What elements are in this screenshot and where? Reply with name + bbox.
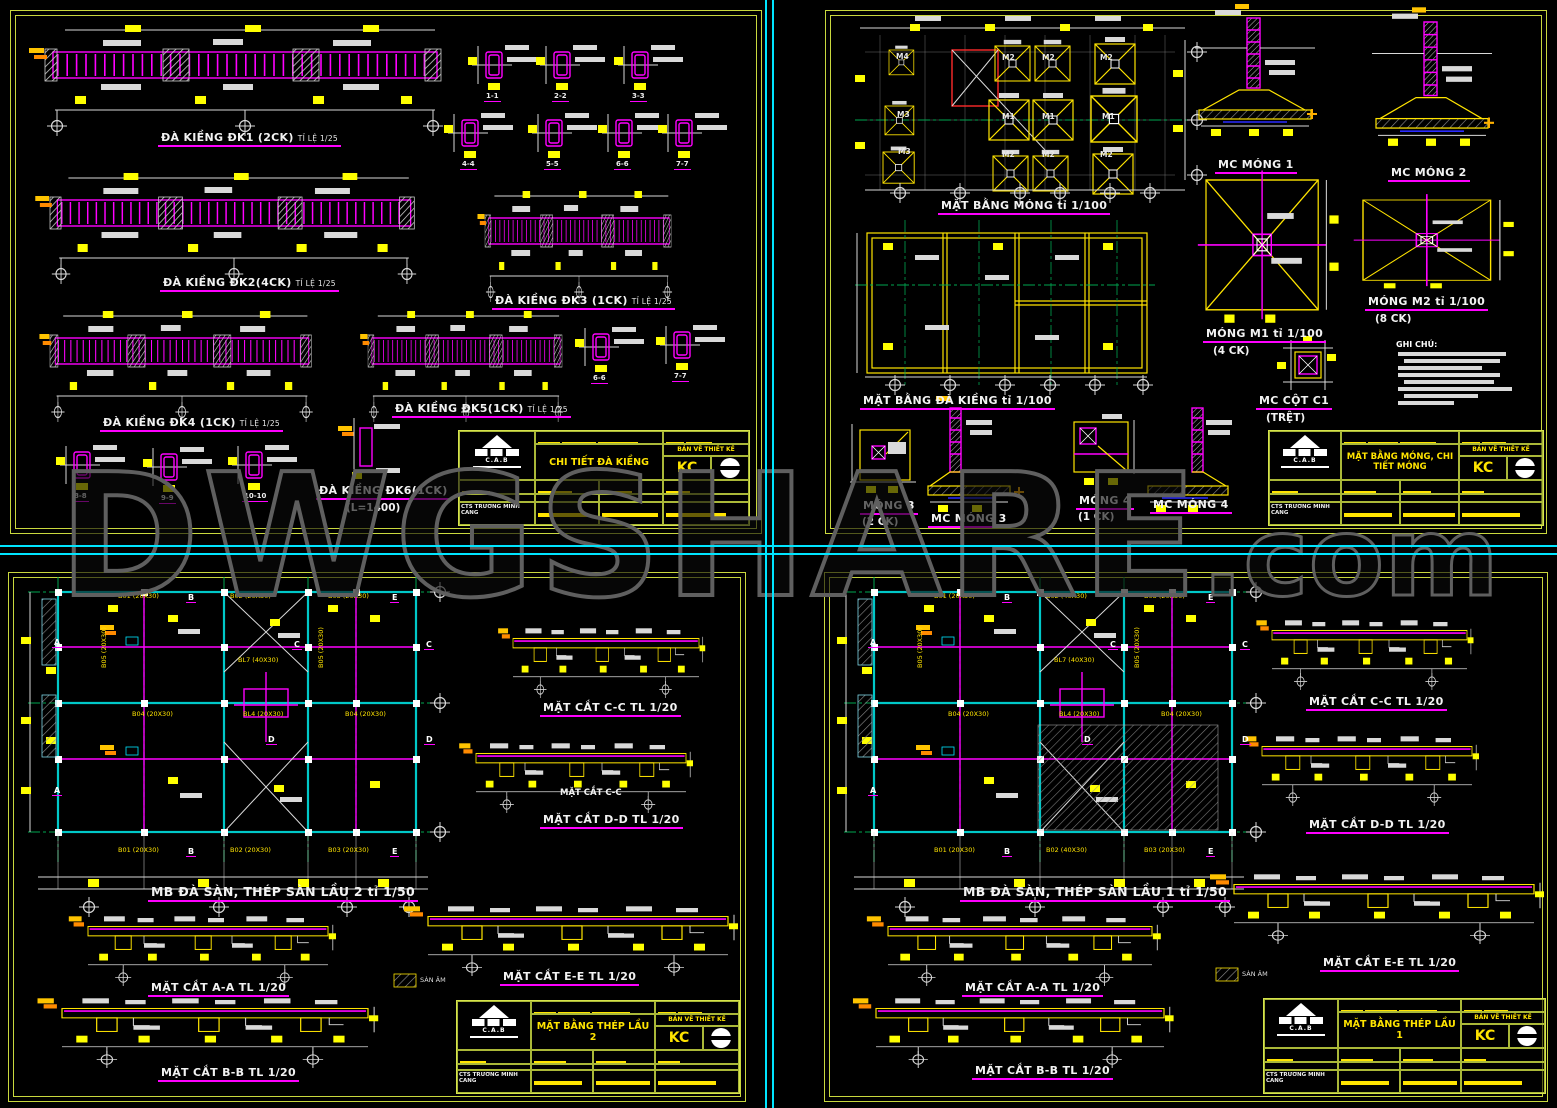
caption-mc-mong1: MC MÓNG 1 [1215,158,1297,174]
footing-label-m2: M2 [1002,150,1015,159]
beam-label-b02: B02 (40X30) [1046,846,1087,854]
logo-triangle-icon [1290,435,1320,448]
caption-cut-aa-bl: MẶT CẮT A-A TL 1/20 [148,981,289,997]
section-label-4-4: 4-4 [460,160,477,170]
discipline-code: KC [1459,456,1507,480]
beam-label-b05-v: B05 (20X30) [916,627,924,668]
axis-a: A [52,786,62,796]
project-strip [535,431,663,444]
beam-label-b01: B01 (20X30) [118,592,159,600]
footing-label-m2: M2 [1042,150,1055,159]
caption-cut-ee-br: MẶT CẮT E-E TL 1/20 [1320,956,1459,972]
revision-strip [1461,999,1545,1012]
caption-mong-m1-sub: (4 CK) [1213,345,1249,357]
section-label-2-2: 2-2 [552,92,569,102]
crosshair-horizontal-line [0,553,1557,555]
axis-a: A [52,638,62,648]
firm-name: CTS TRƯƠNG MINH CANG [1269,502,1341,525]
caption-mc-mong2: MC MÓNG 2 [1388,166,1470,182]
project-strip [1338,999,1461,1012]
drawing-title: MẶT BẰNG MÓNG, CHI TIẾT MÓNG [1341,444,1459,480]
sheet-number-icon [1517,1026,1537,1046]
beam-label-b03: B03 (20X30) [328,846,369,854]
section-label-7-7: 7-7 [674,160,691,170]
company-logo: C.A.B [457,1001,531,1050]
caption-mat-bang-mong: MẶT BẰNG MÓNG tỉ 1/100 [938,199,1110,215]
section-label-8-8: 8-8 [72,492,89,502]
axis-c: C [1240,640,1250,650]
sheet-number-icon [720,458,740,478]
caption-cut-dd-bl: MẶT CẮT D-D TL 1/20 [540,813,683,829]
logo-bars-icon [1283,449,1327,456]
section-label-3-3: 3-3 [630,92,647,102]
drawing-title: MẶT BẰNG THÉP LẦU 1 [1338,1012,1461,1048]
drawing-title: CHI TIẾT ĐÀ KIỀNG [535,444,663,480]
caption-mong-m2: MÓNG M2 tỉ 1/100 [1365,295,1488,311]
caption-plan-lau1: MB ĐÀ SÀN, THÉP SÀN LẦU 1 tỉ 1/50 [960,884,1230,902]
caption-mong3: MÓNG 3 [860,499,918,515]
beam-label-b03: B03 (20X30) [328,592,369,600]
footing-label-m3: M3 [897,110,910,119]
beam-label-bl7: BL7 (40X30) [1054,656,1094,664]
revision-strip [1459,431,1543,444]
caption-mong4-sub: (1 CK) [1078,511,1114,523]
axis-d: D [424,735,435,745]
beam-label-b04: B04 (20X30) [948,710,989,718]
logo-triangle-icon [482,435,512,448]
caption-cut-bb-br: MẶT CẮT B-B TL 1/20 [972,1064,1113,1080]
caption-mc-mong4: MC MÓNG 4 [1150,498,1232,514]
beam-label-b04: B04 (20X30) [345,710,386,718]
footing-label-m1: M1 [1042,112,1055,121]
cad-canvas: ĐÀ KIỀNG ĐK1 (2CK)TỈ LỆ 1/25 ĐÀ KIỀNG ĐK… [0,0,1557,1108]
caption-dk2: ĐÀ KIỀNG ĐK2(4CK)TỈ LỆ 1/25 [160,276,339,292]
company-logo: C.A.B [1264,999,1338,1048]
axis-b: B [1002,593,1012,603]
sheet-number-cell [1507,456,1543,480]
beam-label-b05-v: B05 (20X30) [100,627,108,668]
caption-mat-bang-da-kieng: MẶT BẰNG ĐÀ KIỀNG tỉ 1/100 [860,394,1055,410]
footing-label-m4: M4 [896,52,909,61]
axis-b: B [186,593,196,603]
caption-mc-mong3: MC MÓNG 3 [928,512,1010,528]
caption-cut-dd-br: MẶT CẮT D-D TL 1/20 [1306,818,1449,834]
caption-cut-cc-br: MẶT CẮT C-C TL 1/20 [1306,695,1447,711]
footing-label-m2: M2 [1042,53,1055,62]
sheet-number-cell [703,1026,739,1050]
crosshair-horizontal-line [0,545,1557,547]
axis-d: D [1240,735,1251,745]
axis-c: C [424,640,434,650]
beam-label-b03: B03 (20X30) [1144,592,1185,600]
notes-title: GHI CHÚ: [1396,340,1437,349]
beam-label-bl4: BL4 (20X30) [243,710,283,718]
caption-mong-m2-sub: (8 CK) [1375,313,1411,325]
legend-san-am-br: SÀN ÂM [1242,970,1268,978]
firm-name: CTS TRƯƠNG MINH CANG [459,502,535,525]
axis-c: C [292,640,302,650]
discipline-code: KC [655,1026,703,1050]
logo-triangle-icon [1286,1003,1316,1016]
footing-label-m2: M2 [1100,150,1113,159]
footing-label-m1: M1 [1102,112,1115,121]
beam-label-b05-v: B05 (20X30) [317,627,325,668]
project-strip [1341,431,1459,444]
logo-bars-icon [472,1019,516,1026]
title-block-br: C.A.B MẶT BẰNG THÉP LẦU 1 BẢN VẼ THIẾT K… [1263,998,1546,1094]
crosshair-vertical-line [772,0,774,1108]
drawing-title: MẶT BẰNG THÉP LẦU 2 [531,1014,655,1050]
doc-type: BẢN VẼ THIẾT KẾ [663,444,749,456]
sheet-number-cell [711,456,749,480]
section-label-6-6: 6-6 [614,160,631,170]
caption-cut-bb-bl: MẶT CẮT B-B TL 1/20 [158,1066,299,1082]
caption-dk6-sub: (L=1400) [346,502,400,514]
footing-label-m2: M2 [1100,53,1113,62]
caption-cut-ee-bl: MẶT CẮT E-E TL 1/20 [500,970,639,986]
section-label-5-5: 5-5 [544,160,561,170]
beam-label-b05-v: B05 (20X30) [1133,627,1141,668]
firm-name: CTS TRƯƠNG MINH CANG [1264,1070,1338,1093]
axis-b: B [186,847,196,857]
title-block-tr: C.A.B MẶT BẰNG MÓNG, CHI TIẾT MÓNG BẢN V… [1268,430,1544,526]
section-label-1-1: 1-1 [484,92,501,102]
caption-mong-m1: MÓNG M1 tỉ 1/100 [1203,327,1326,343]
revision-strip [663,431,749,444]
beam-label-bl7: BL7 (40X30) [238,656,278,664]
beam-label-b01: B01 (20X30) [934,846,975,854]
caption-mong3-sub: (2 CK) [862,516,898,528]
sheet-number-icon [1515,458,1535,478]
caption-dk4: ĐÀ KIỀNG ĐK4 (1CK)TỈ LỆ 1/25 [100,416,283,432]
axis-d: D [1082,735,1093,745]
axis-b: B [1002,847,1012,857]
logo-bars-icon [475,449,519,456]
axis-e: E [390,593,399,603]
section-label-10-10: 10-10 [242,492,268,502]
revision-strip [655,1001,739,1014]
beam-label-b01: B01 (20X30) [118,846,159,854]
firm-name: CTS TRƯƠNG MINH CANG [457,1070,531,1093]
beam-label-b02: B02 (20X30) [230,846,271,854]
axis-a: A [868,786,878,796]
caption-dk6: ĐÀ KIỀNG ĐK6(1CK) [316,484,451,500]
crosshair-vertical-line [765,0,767,1108]
caption-dk5: ĐÀ KIỀNG ĐK5(1CK)TỈ LỆ 1/25 [392,402,571,418]
doc-type: BẢN VẼ THIẾT KẾ [1459,444,1543,456]
beam-label-b04: B04 (20X30) [132,710,173,718]
discipline-code: KC [663,456,711,480]
caption-dk3: ĐÀ KIỀNG ĐK3 (1CK)TỈ LỆ 1/25 [492,294,675,310]
caption-cut-aa-br: MẶT CẮT A-A TL 1/20 [962,981,1103,997]
title-block-tl: C.A.B CHI TIẾT ĐÀ KIỀNG BẢN VẼ THIẾT KẾ … [458,430,750,526]
caption-cut-cc-bl: MẶT CẮT C-C TL 1/20 [540,701,681,717]
axis-d: D [266,735,277,745]
logo-bars-icon [1279,1017,1323,1024]
logo-triangle-icon [479,1005,509,1018]
axis-e: E [390,847,399,857]
axis-c: C [1108,640,1118,650]
axis-a: A [868,638,878,648]
caption-mong4: MÓNG 4 [1076,494,1134,510]
caption-mc-cot-sub: (TRỆT) [1266,412,1305,424]
doc-type: BẢN VẼ THIẾT KẾ [655,1014,739,1026]
project-strip [531,1001,655,1014]
discipline-code: KC [1461,1024,1509,1048]
beam-label-b03: B03 (20X30) [1144,846,1185,854]
beam-label-b04: B04 (20X30) [1161,710,1202,718]
section-label-7-7b: 7-7 [672,372,689,382]
footing-label-m1: M1 [1002,112,1015,121]
footing-label-m3: M3 [898,147,911,156]
legend-san-am-bl: SÀN ÂM [420,976,446,984]
caption-plan-lau2: MB ĐÀ SÀN, THÉP SÀN LẦU 2 tỉ 1/50 [148,884,418,902]
beam-label-b02: B02 (20X30) [230,592,271,600]
beam-label-b01: B01 (20X30) [934,592,975,600]
footing-label-m2: M2 [1002,53,1015,62]
beam-label-bl4: BL4 (20X30) [1059,710,1099,718]
section-label-9-9: 9-9 [159,494,176,504]
title-block-bl: C.A.B MẶT BẰNG THÉP LẦU 2 BẢN VẼ THIẾT K… [456,1000,740,1094]
axis-e: E [1206,593,1215,603]
sheet-number-icon [711,1028,731,1048]
caption-mc-cot-c1: MC CỘT C1 [1256,394,1332,410]
section-label-6-6b: 6-6 [591,374,608,384]
company-logo: C.A.B [1269,431,1341,480]
caption-cut-cc-plain-bl: MẶT CẮT C-C [560,788,622,798]
company-logo: C.A.B [459,431,535,480]
axis-e: E [1206,847,1215,857]
caption-dk1: ĐÀ KIỀNG ĐK1 (2CK)TỈ LỆ 1/25 [158,131,341,147]
doc-type: BẢN VẼ THIẾT KẾ [1461,1012,1545,1024]
beam-label-b02: B02 (40X30) [1046,592,1087,600]
sheet-number-cell [1509,1024,1545,1048]
